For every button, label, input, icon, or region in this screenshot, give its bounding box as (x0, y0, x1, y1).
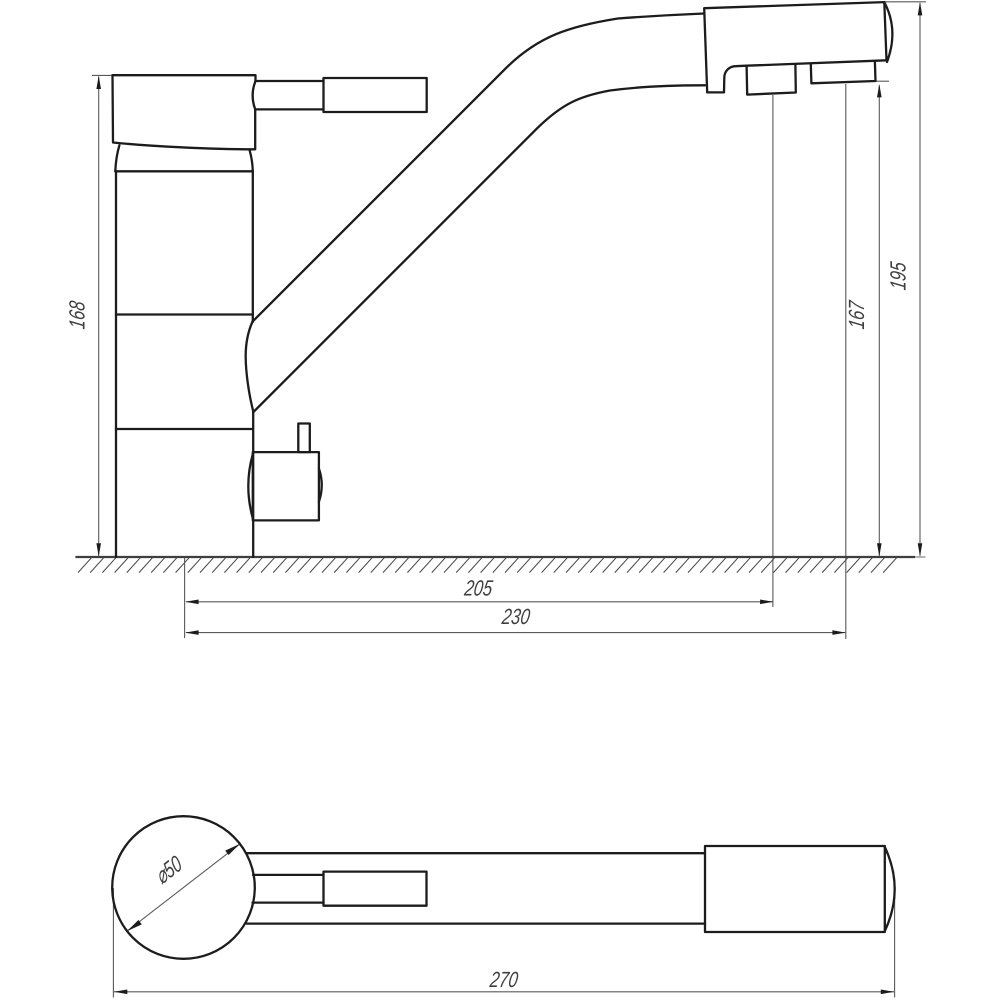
svg-text:230: 230 (500, 605, 532, 630)
svg-text:270: 270 (488, 968, 520, 993)
svg-text:167: 167 (845, 299, 870, 331)
svg-text:205: 205 (462, 576, 494, 601)
svg-text:168: 168 (65, 299, 90, 330)
svg-text:195: 195 (886, 260, 911, 291)
